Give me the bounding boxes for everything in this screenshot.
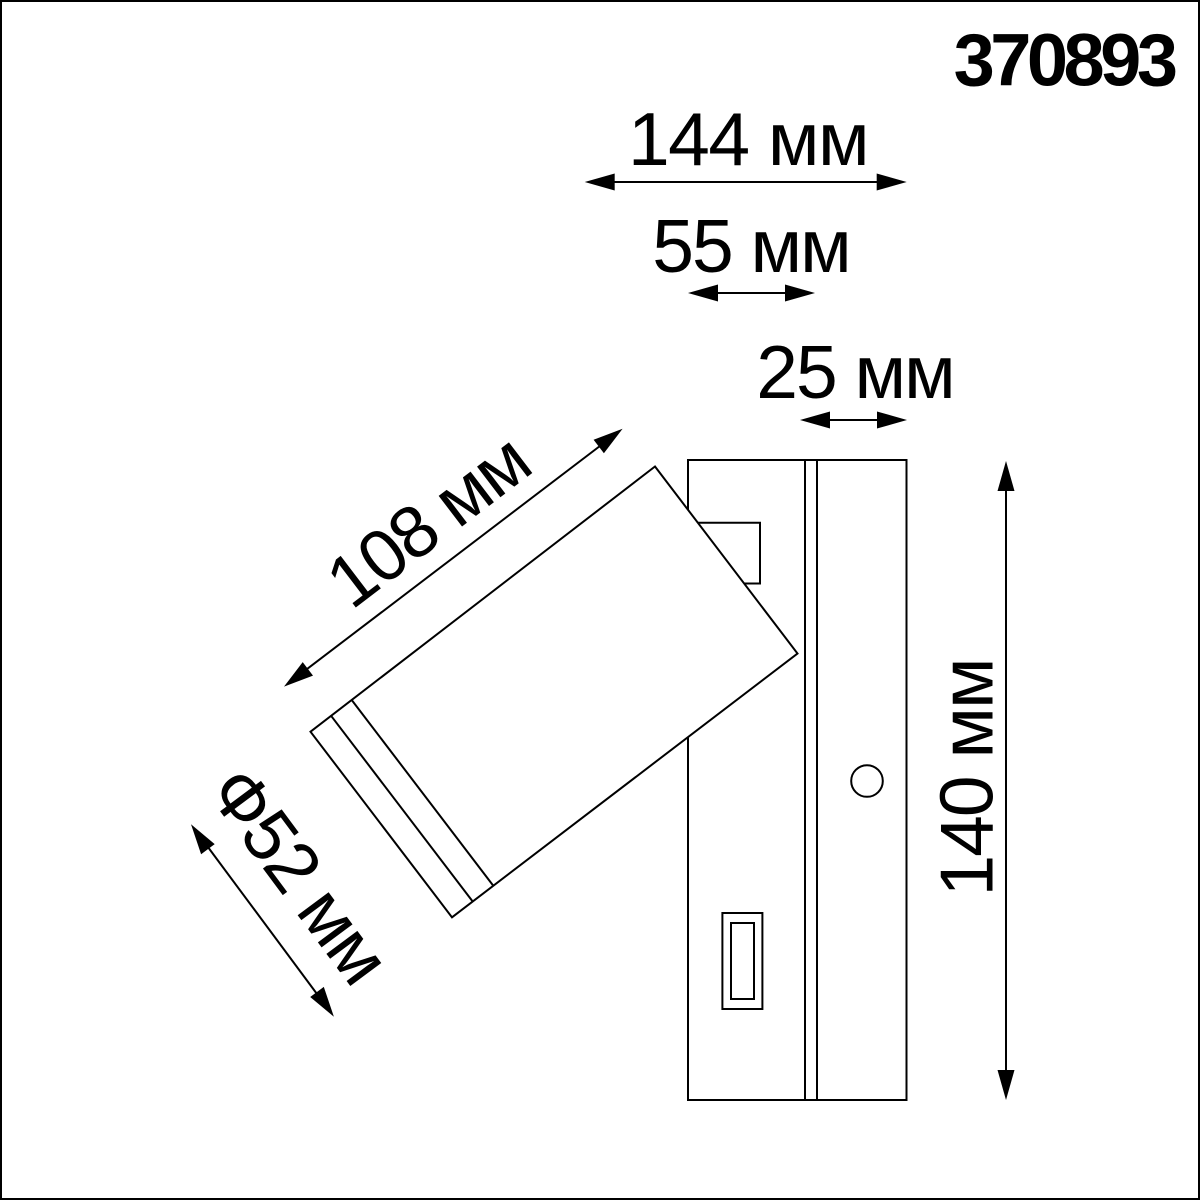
svg-text:370893: 370893 bbox=[954, 19, 1176, 102]
svg-text:144 мм: 144 мм bbox=[628, 97, 868, 181]
svg-text:140 мм: 140 мм bbox=[925, 659, 1009, 896]
svg-text:55 мм: 55 мм bbox=[652, 204, 849, 288]
svg-text:25 мм: 25 мм bbox=[756, 330, 953, 414]
